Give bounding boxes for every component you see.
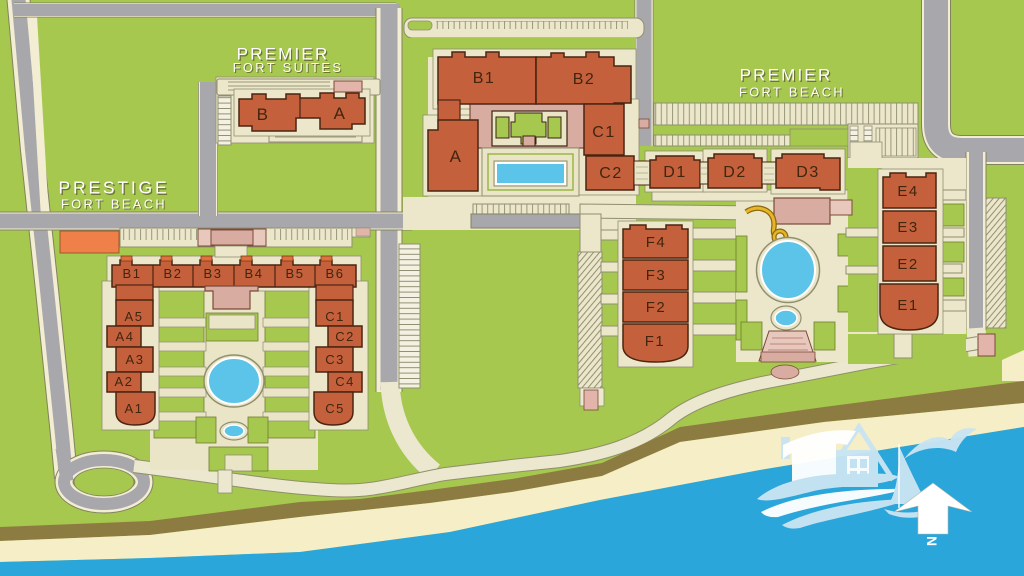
svg-text:E4: E4 <box>897 183 918 200</box>
svg-text:E1: E1 <box>897 297 918 314</box>
svg-text:A: A <box>334 104 347 123</box>
svg-text:C1: C1 <box>325 309 345 324</box>
svg-text:D1: D1 <box>663 164 686 181</box>
svg-text:D3: D3 <box>796 164 819 181</box>
svg-text:B1: B1 <box>123 266 142 281</box>
svg-text:F3: F3 <box>646 267 667 284</box>
svg-text:C5: C5 <box>325 401 345 416</box>
svg-text:A2: A2 <box>115 374 134 389</box>
svg-text:D2: D2 <box>723 164 746 181</box>
svg-text:F2: F2 <box>646 299 667 316</box>
svg-text:N: N <box>924 536 940 546</box>
svg-text:B2: B2 <box>164 266 183 281</box>
svg-text:B1: B1 <box>473 70 496 87</box>
svg-text:PRESTIGE: PRESTIGE <box>59 178 170 198</box>
svg-text:A5: A5 <box>125 309 144 324</box>
svg-text:B6: B6 <box>326 266 345 281</box>
svg-text:FORT BEACH: FORT BEACH <box>61 197 167 212</box>
svg-text:B: B <box>257 105 270 124</box>
svg-text:E2: E2 <box>897 256 918 273</box>
svg-text:C3: C3 <box>325 352 345 367</box>
svg-text:C2: C2 <box>335 329 355 344</box>
svg-text:FORT SUITES: FORT SUITES <box>233 60 344 75</box>
svg-text:B5: B5 <box>286 266 305 281</box>
svg-text:C2: C2 <box>599 165 622 182</box>
svg-text:F4: F4 <box>646 234 667 251</box>
svg-text:PREMIER: PREMIER <box>740 66 833 85</box>
svg-text:A3: A3 <box>126 352 145 367</box>
svg-text:A: A <box>450 147 463 166</box>
svg-text:C1: C1 <box>592 124 615 141</box>
svg-text:B2: B2 <box>573 71 596 88</box>
svg-text:B3: B3 <box>204 266 223 281</box>
svg-text:E3: E3 <box>897 219 918 236</box>
svg-text:F1: F1 <box>645 333 666 350</box>
svg-text:A1: A1 <box>125 401 144 416</box>
svg-text:B4: B4 <box>245 266 264 281</box>
svg-text:A4: A4 <box>116 329 135 344</box>
svg-text:FORT BEACH: FORT BEACH <box>739 85 845 100</box>
svg-text:C4: C4 <box>335 374 355 389</box>
